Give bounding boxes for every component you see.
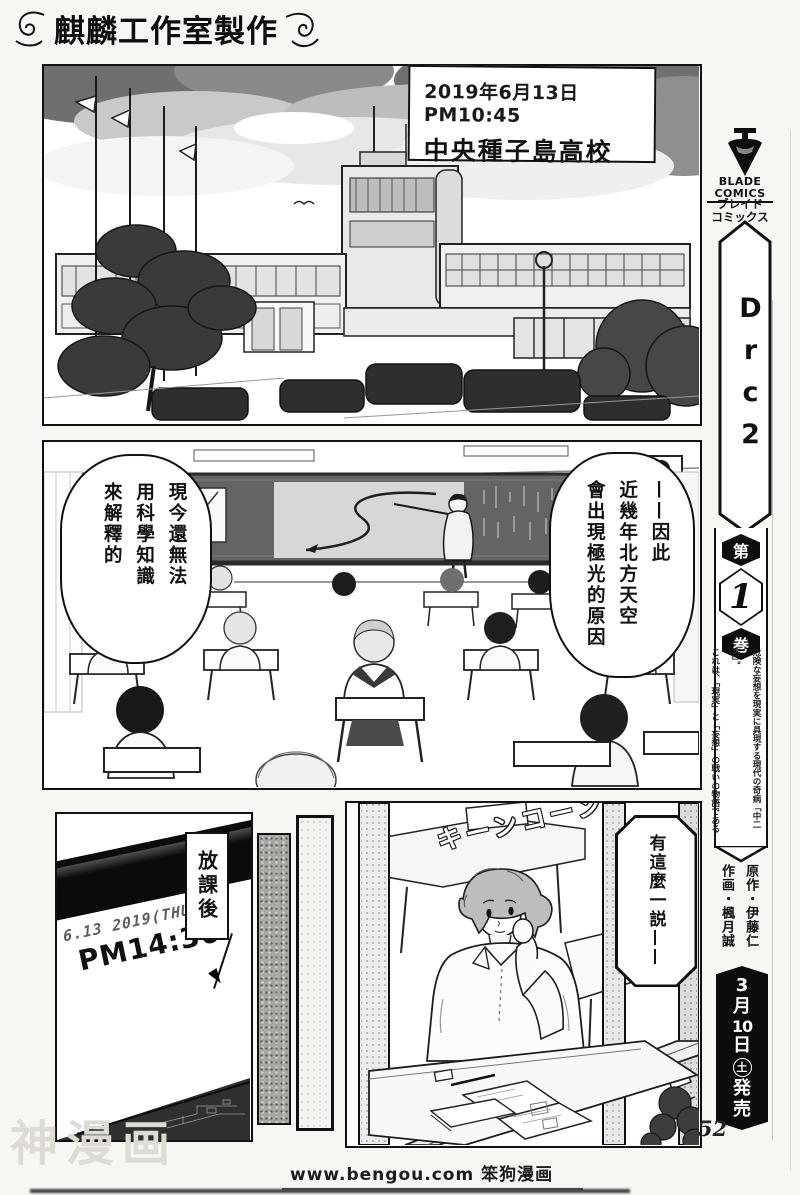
release-day-circle: 土 [733,1058,752,1077]
panel-clock: 6.13 2019(THU) PM14:30 放課後 [55,812,253,1142]
flourish-icon [282,7,322,51]
volume-badge: 第 1 巻 [719,534,763,660]
site-credit: www.bengou.com 笨狗漫画 [282,1160,583,1190]
panel-classroom: 現今還無法 用科學知識 來解釋的 ——因此 近幾年北方天空 會出現極光的原因 [42,440,702,790]
page-number: 52 [698,1116,727,1141]
speech-text: 現今還無法 用科學知識 來解釋的 [62,456,210,662]
margin-rule [790,130,791,1170]
caption-date: 2019年6月13日 PM10:45 [424,77,642,128]
series-tagline: 危険な妄想を現実に具現する現代の奇病「中二病」。 これは、「現実」と「妄想」の戦… [716,648,766,844]
credit-original: 原作・伊藤仁 [738,864,762,968]
speech-text: ——因此 近幾年北方天空 會出現極光的原因 [551,454,693,676]
margin-rule [772,300,773,1140]
watermark-text: 神漫画 [10,1104,178,1174]
series-title: Drc2 [724,238,766,516]
author-credits: 原作・伊藤仁 作画・楓月誠 [714,864,762,968]
studio-credit: 麒麟工作室製作 [10,6,322,51]
panel-strip-dark [257,833,291,1125]
manga-page: 麒麟工作室製作 [0,0,800,1195]
speech-bubble-science: 現今還無法 用科學知識 來解釋的 [60,454,212,664]
volume-number: 1 [721,570,761,624]
caption-after-school: 放課後 [185,832,229,940]
scan-edge-shadow [30,1189,630,1193]
release-date-banner: 3 月 10 日 土 発 売 [716,966,768,1130]
panel-boy-at-desk: キーンコーン 有這麼一説—— [345,801,702,1148]
speech-text: 有這麼一説—— [644,818,669,967]
studio-credit-text: 麒麟工作室製作 [54,6,278,51]
caption-datetime-box: 2019年6月13日 PM10:45 中央種子島高校 [408,65,657,163]
speech-bubble-aurora: ——因此 近幾年北方天空 會出現極光的原因 [549,452,695,678]
credit-art: 作画・楓月誠 [714,864,738,968]
banner-point [714,846,768,864]
speech-bubble-remark: 有這麼一説—— [615,815,697,987]
flourish-icon [10,7,50,51]
blade-comics-icon [722,126,768,178]
caption-school-name: 中央種子島高校 [424,131,642,169]
panel-strip-light [296,815,334,1131]
